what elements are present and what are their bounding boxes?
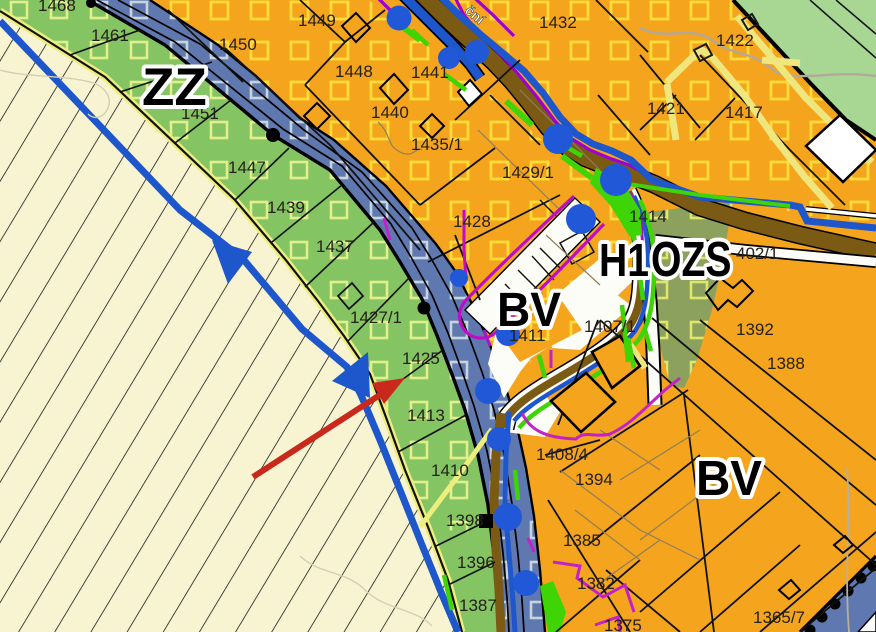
svg-text:1396: 1396: [457, 553, 495, 572]
svg-text:1414: 1414: [629, 207, 667, 226]
svg-text:1440: 1440: [371, 103, 409, 122]
svg-text:OZS: OZS: [651, 233, 732, 287]
svg-text:1447: 1447: [228, 158, 266, 177]
svg-text:1450: 1450: [219, 35, 257, 54]
svg-text:1385: 1385: [563, 531, 601, 550]
svg-text:1425: 1425: [402, 349, 440, 368]
svg-text:BV: BV: [497, 282, 562, 336]
svg-text:1435/1: 1435/1: [411, 135, 463, 154]
svg-text:1427/1: 1427/1: [350, 308, 402, 327]
svg-text:BV: BV: [696, 451, 762, 506]
svg-text:1394: 1394: [575, 470, 613, 489]
svg-text:1461: 1461: [91, 26, 129, 45]
svg-text:H1: H1: [599, 235, 649, 287]
svg-text:1388: 1388: [767, 354, 805, 373]
svg-text:1448: 1448: [335, 62, 373, 81]
svg-text:1392: 1392: [736, 320, 774, 339]
svg-text:1407/1: 1407/1: [584, 317, 636, 336]
svg-text:1410: 1410: [431, 461, 469, 480]
svg-text:1365/7: 1365/7: [753, 608, 805, 627]
svg-text:1375: 1375: [604, 616, 642, 632]
svg-text:1428: 1428: [453, 212, 491, 231]
svg-text:1439: 1439: [267, 198, 305, 217]
svg-text:1432: 1432: [539, 13, 577, 32]
svg-text:1417: 1417: [725, 103, 763, 122]
svg-text:1387: 1387: [459, 596, 497, 615]
svg-text:1398: 1398: [446, 511, 484, 530]
svg-text:1441: 1441: [411, 63, 449, 82]
svg-text:1413: 1413: [407, 406, 445, 425]
svg-text:1429/1: 1429/1: [502, 163, 554, 182]
svg-text:ZZ: ZZ: [142, 58, 207, 117]
svg-text:402/1: 402/1: [736, 244, 779, 263]
svg-text:1449: 1449: [298, 11, 336, 30]
svg-text:1382: 1382: [577, 574, 615, 593]
svg-text:1408/4: 1408/4: [536, 445, 588, 464]
svg-text:1422: 1422: [716, 31, 754, 50]
svg-text:1468: 1468: [38, 0, 76, 15]
svg-text:1421: 1421: [647, 99, 685, 118]
svg-text:1437: 1437: [316, 237, 354, 256]
